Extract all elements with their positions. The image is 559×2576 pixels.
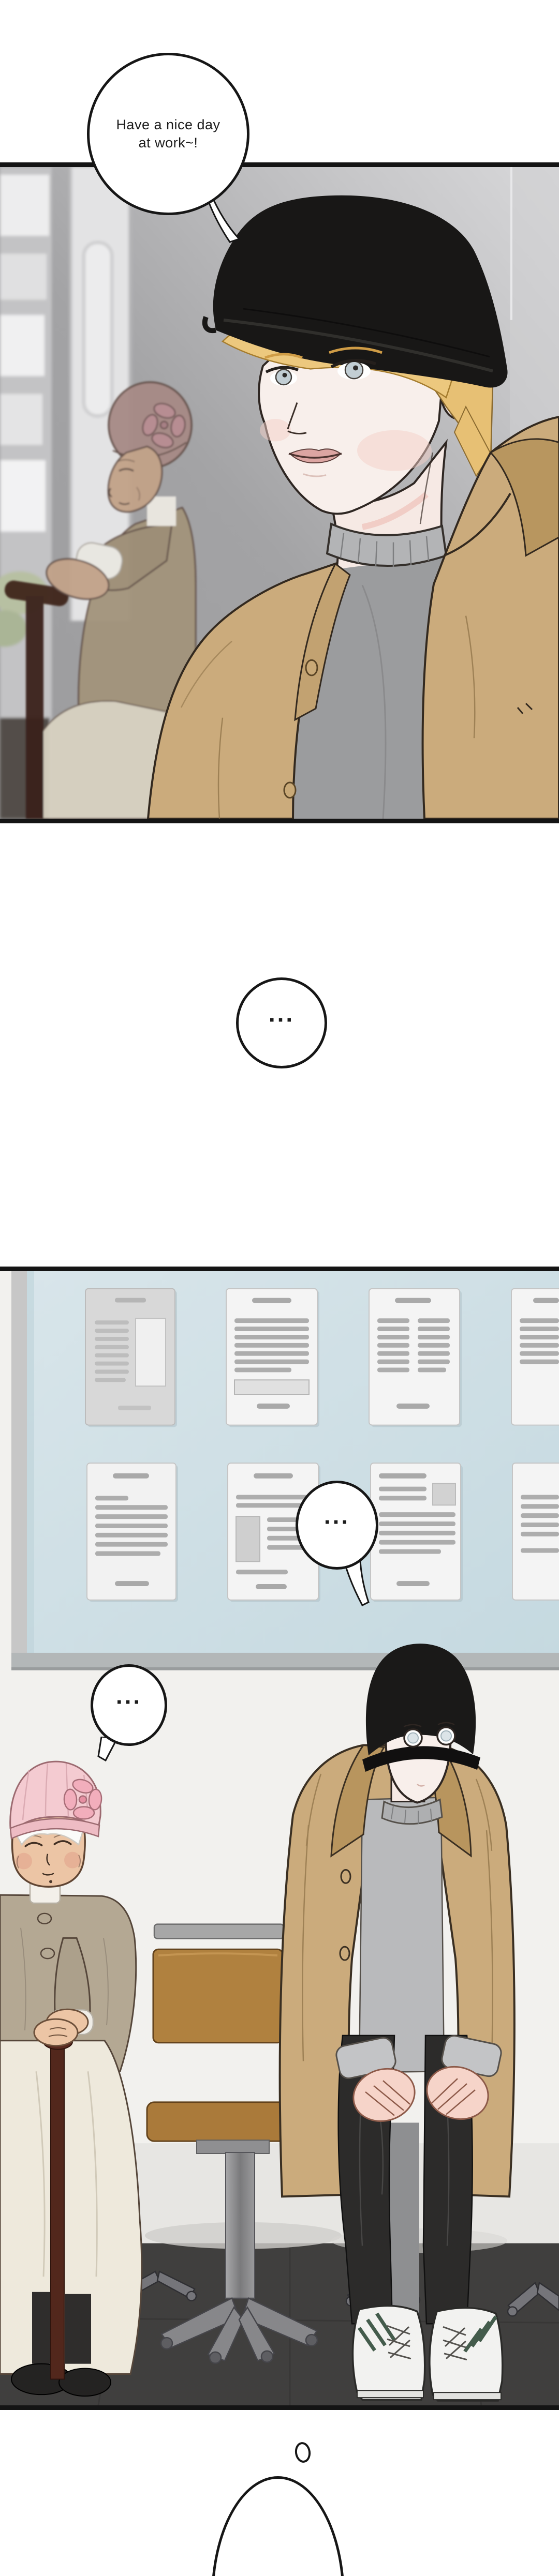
mole [49, 1880, 52, 1883]
cane-shaft [51, 2045, 64, 2379]
waiting-room-scene [0, 1271, 559, 2405]
shin [65, 2294, 91, 2364]
shoe [59, 2369, 111, 2397]
notice-paper [511, 1289, 559, 1425]
hallway-scene [0, 167, 559, 819]
sneaker-right [430, 2308, 503, 2401]
ellipsis-text: ... [269, 1000, 295, 1028]
cheek-blush [357, 430, 432, 471]
notice-paper [371, 1463, 463, 1602]
speech-text: at work~! [139, 134, 198, 152]
hand [34, 2019, 78, 2046]
sneaker-left [352, 2306, 424, 2400]
notice-paper [369, 1289, 462, 1427]
coat-button [306, 660, 317, 675]
bulletin-board [11, 1271, 559, 1670]
ellipsis-text: ... [116, 1682, 142, 1710]
webtoon-page: Have a nice day at work~! ... ... ... Wh… [0, 0, 559, 2576]
board-frame-left [11, 1271, 27, 1668]
comic-panel-hallway [0, 162, 559, 823]
comic-panel-waiting-room [0, 1267, 559, 2410]
notice-paper [512, 1463, 559, 1600]
blush [64, 1852, 81, 1869]
speech-bubble-question: When is Jess coming? [211, 2476, 345, 2576]
cane-shaft [26, 596, 43, 819]
small-breath-circle [293, 2441, 312, 2464]
notice-paper-grey [85, 1289, 177, 1427]
board-ledge [11, 1653, 559, 1668]
speech-bubble-silence: ... [296, 1481, 378, 1570]
grey-sweater [359, 1798, 444, 2073]
notice-paper [226, 1289, 319, 1427]
notice-paper [87, 1463, 178, 1602]
chair-back-panel [153, 1949, 283, 2043]
chair-pedestal [226, 2152, 255, 2298]
speech-bubble-silence: ... [236, 977, 327, 1068]
speech-bubble-greeting: Have a nice day at work~! [87, 53, 249, 215]
coat-button [284, 782, 296, 798]
ellipsis-text: ... [324, 1502, 350, 1530]
speech-text: Have a nice day [116, 116, 220, 134]
door-handle [84, 243, 112, 416]
chair-top-rail [154, 1924, 284, 1939]
speech-bubble-silence: ... [91, 1664, 167, 1746]
chair-seat [147, 2102, 288, 2141]
